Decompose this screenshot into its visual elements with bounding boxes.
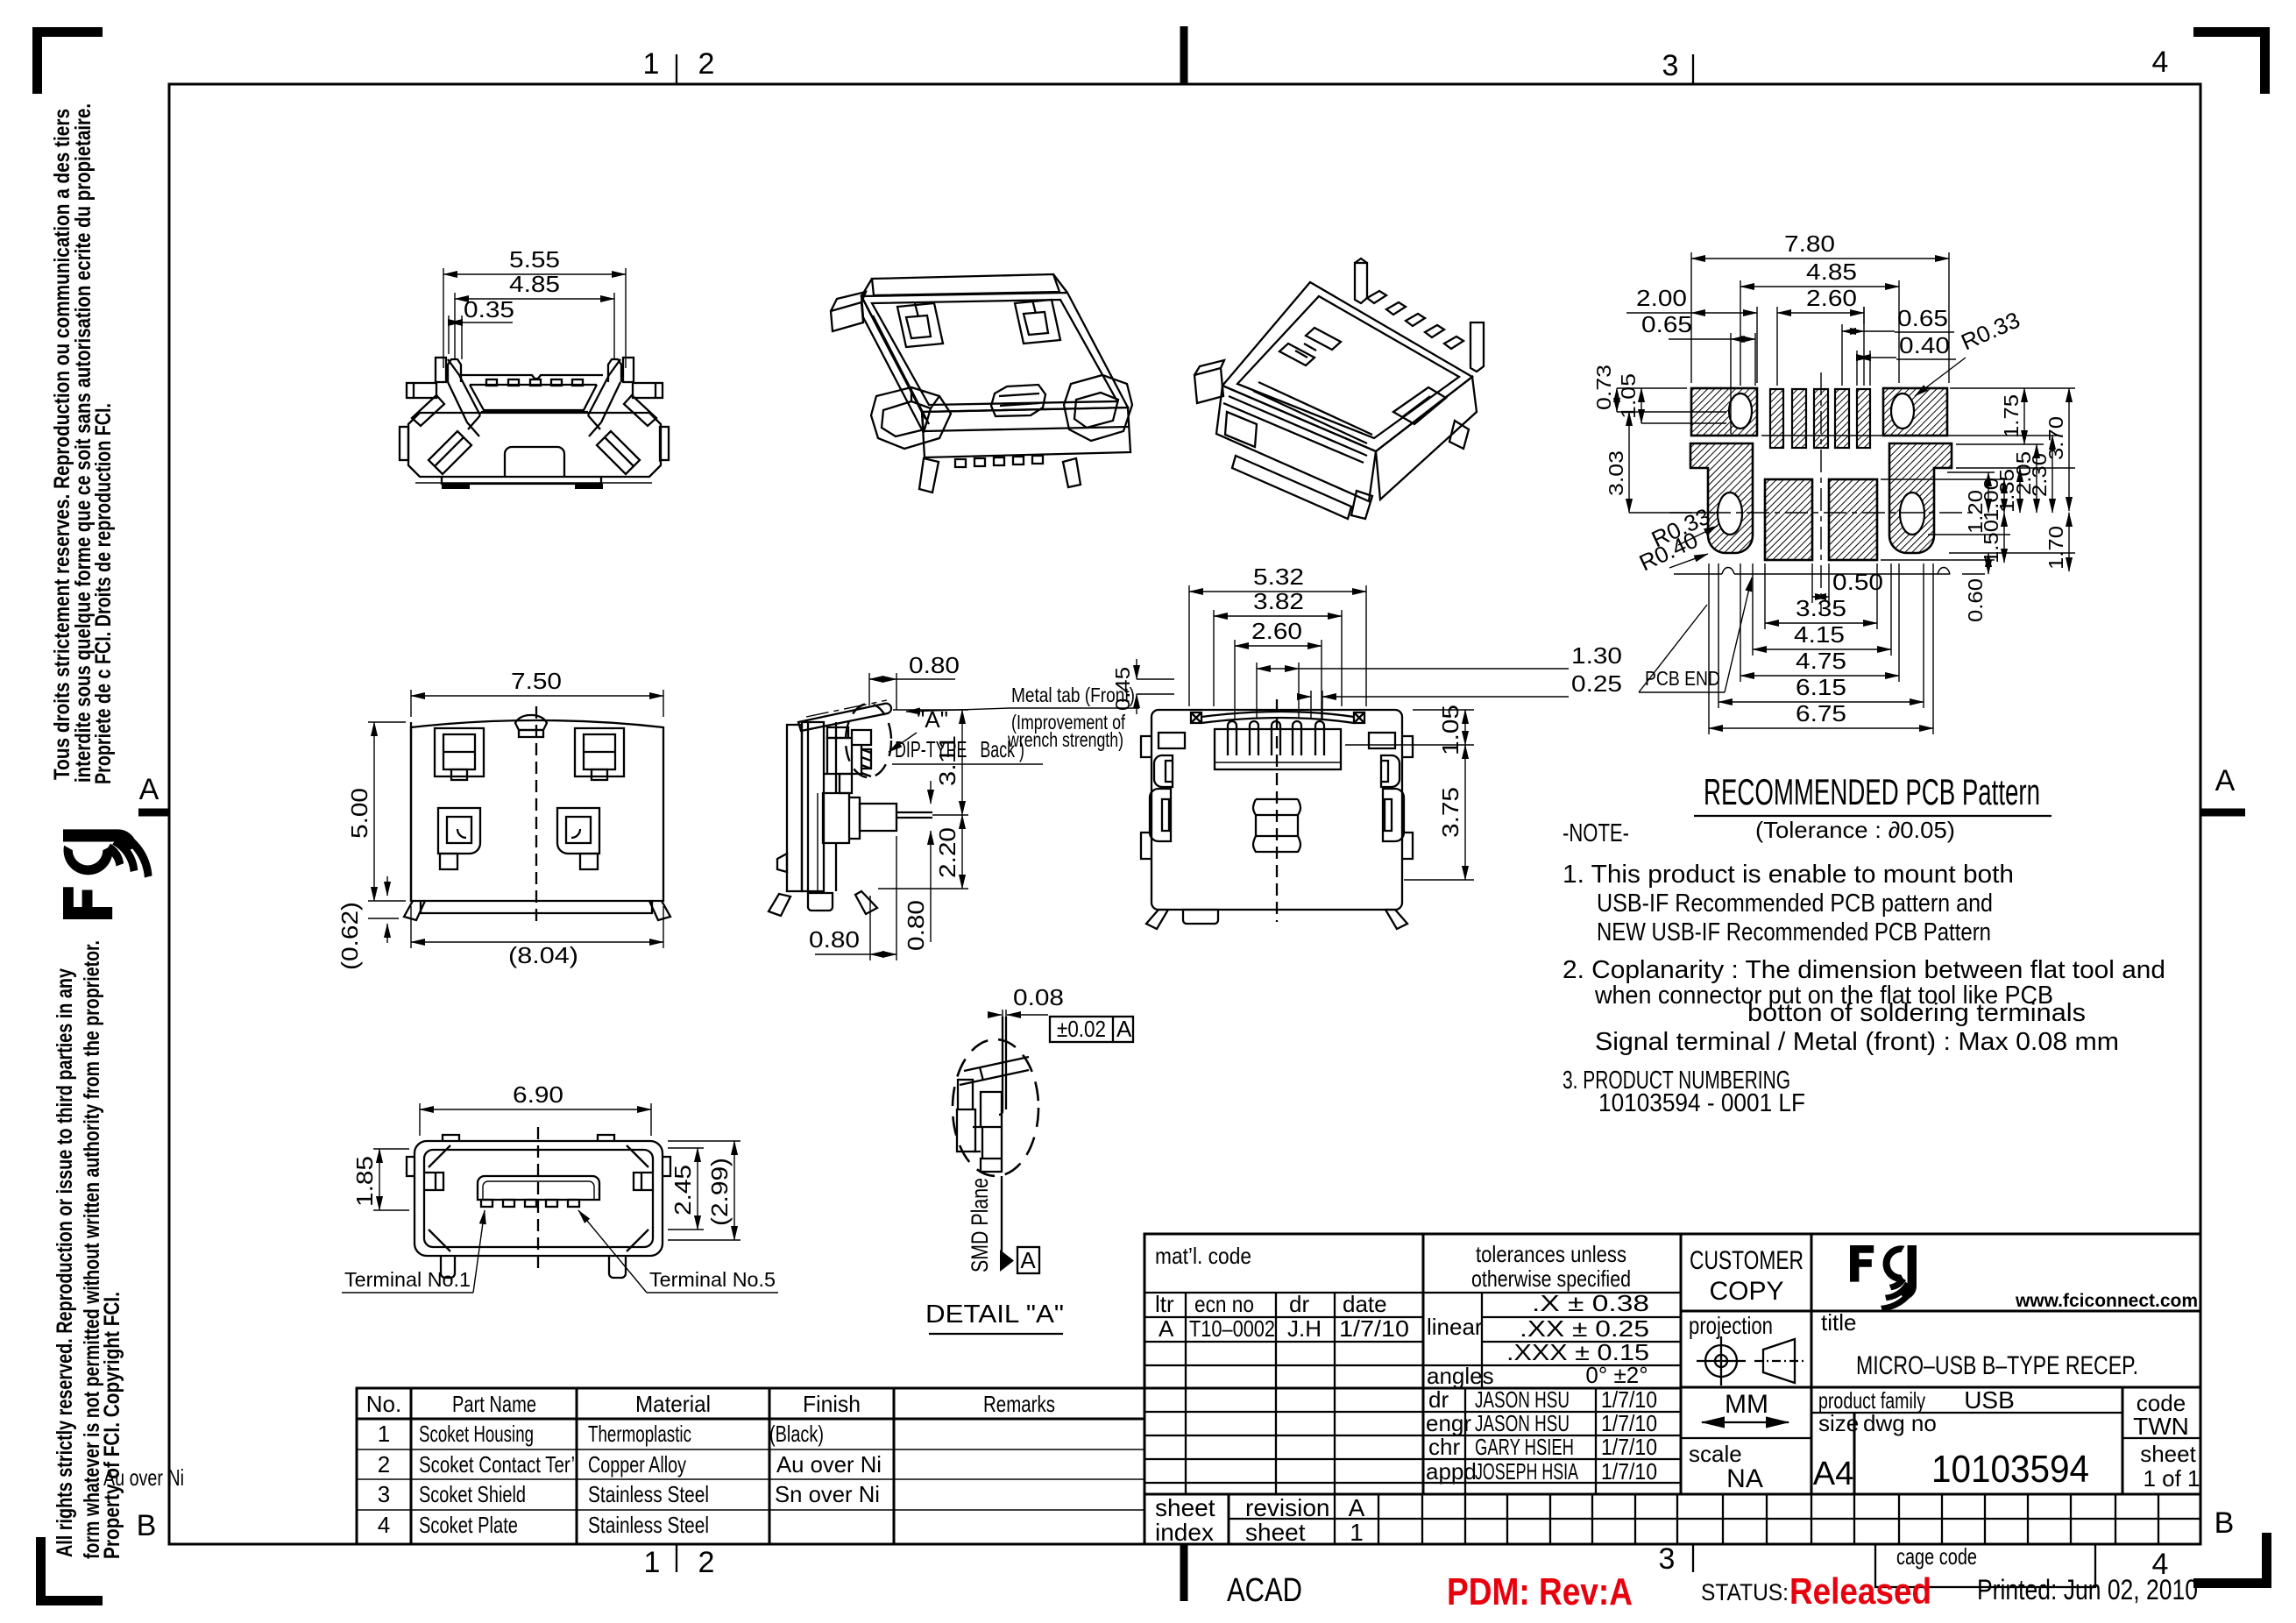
svg-text:1/7/10: 1/7/10 <box>1601 1410 1657 1436</box>
svg-text:ltr: ltr <box>1155 1291 1174 1317</box>
svg-text:4.85: 4.85 <box>509 271 560 297</box>
svg-text:2.00: 2.00 <box>1636 285 1687 311</box>
svg-text:USB: USB <box>1964 1386 2015 1414</box>
svg-text:sheet: sheet <box>2140 1441 2196 1467</box>
svg-text:0.60: 0.60 <box>1964 578 1987 622</box>
svg-text:.X ± 0.38: .X ± 0.38 <box>1532 1290 1649 1316</box>
svg-text:0.25: 0.25 <box>1571 670 1622 697</box>
svg-text:(0.62): (0.62) <box>337 902 363 970</box>
svg-text:2.45: 2.45 <box>670 1165 696 1215</box>
svg-text:A: A <box>1020 1247 1036 1273</box>
svg-text:5.55: 5.55 <box>509 246 560 273</box>
svg-text:0.50: 0.50 <box>1832 569 1883 595</box>
svg-text:PDM: Rev:A: PDM: Rev:A <box>1447 1570 1633 1613</box>
svg-text:MM: MM <box>1725 1390 1768 1419</box>
svg-text:JOSEPH HSIA: JOSEPH HSIA <box>1475 1458 1578 1485</box>
svg-text:0.80: 0.80 <box>903 900 929 951</box>
svg-text:ACAD: ACAD <box>1227 1572 1302 1609</box>
svg-text:0.40: 0.40 <box>1899 332 1950 358</box>
svg-text:chr: chr <box>1428 1434 1460 1460</box>
svg-text:GARY HSIEH: GARY HSIEH <box>1475 1434 1574 1460</box>
svg-text:(2.99): (2.99) <box>706 1158 733 1226</box>
svg-text:1: 1 <box>644 1546 661 1579</box>
svg-text:Printed: Jun 02, 2010: Printed: Jun 02, 2010 <box>1977 1574 2198 1605</box>
svg-text:0° ±2°: 0° ±2° <box>1585 1362 1648 1388</box>
svg-text:1: 1 <box>643 47 660 81</box>
svg-text:SMD Plane: SMD Plane <box>967 1178 993 1272</box>
svg-text:B: B <box>2215 1506 2235 1540</box>
svg-text:cage code: cage code <box>1896 1543 1977 1570</box>
svg-text:Terminal No.1: Terminal No.1 <box>344 1268 471 1291</box>
svg-text:CUSTOMER: CUSTOMER <box>1690 1246 1803 1275</box>
svg-text:6.75: 6.75 <box>1796 700 1846 726</box>
svg-text:1 of 1: 1 of 1 <box>2143 1465 2200 1492</box>
svg-text:dwg no: dwg no <box>1863 1410 1937 1436</box>
svg-text:10103594 - 0001 LF: 10103594 - 0001 LF <box>1598 1089 1805 1117</box>
svg-text:RECOMMENDED PCB Pattern: RECOMMENDED PCB Pattern <box>1704 771 2040 812</box>
svg-text:sheet: sheet <box>1245 1519 1306 1546</box>
svg-text:projection: projection <box>1689 1312 1773 1339</box>
svg-text:4.15: 4.15 <box>1794 621 1845 648</box>
svg-text:botton of soldering terminals: botton of soldering terminals <box>1747 999 2086 1027</box>
svg-text:6.90: 6.90 <box>513 1081 563 1108</box>
svg-text:0.65: 0.65 <box>1897 305 1948 331</box>
svg-text:linear: linear <box>1427 1314 1483 1340</box>
svg-text:7.50: 7.50 <box>511 668 562 694</box>
svg-text:0.08: 0.08 <box>1013 984 1064 1010</box>
svg-text:3.03: 3.03 <box>1605 450 1627 496</box>
svg-text:7.80: 7.80 <box>1784 230 1835 257</box>
svg-text:1/7/10: 1/7/10 <box>1601 1458 1657 1485</box>
svg-text:0.80: 0.80 <box>809 926 860 953</box>
svg-text:0.35: 0.35 <box>464 296 514 322</box>
svg-text:JASON HSU: JASON HSU <box>1475 1410 1570 1436</box>
svg-text:1: 1 <box>378 1421 390 1447</box>
svg-text:otherwise specified: otherwise specified <box>1471 1265 1631 1292</box>
svg-text:1/7/10: 1/7/10 <box>1601 1386 1657 1413</box>
svg-text:title: title <box>1821 1309 1856 1336</box>
svg-text:A: A <box>139 773 159 806</box>
svg-text:A: A <box>1349 1494 1365 1521</box>
svg-text:Released: Released <box>1789 1570 1931 1612</box>
svg-text:engr: engr <box>1426 1410 1471 1436</box>
svg-text:Scoket Housing: Scoket Housing <box>419 1421 534 1447</box>
svg-text:Au over Ni: Au over Ni <box>776 1451 882 1478</box>
svg-text:J.H: J.H <box>1287 1315 1322 1342</box>
svg-text:(Black): (Black) <box>769 1421 824 1447</box>
svg-text:2: 2 <box>698 1546 715 1579</box>
svg-text:Thermoplastic: Thermoplastic <box>588 1421 691 1447</box>
svg-text:1/7/10: 1/7/10 <box>1339 1315 1409 1342</box>
svg-text:dr: dr <box>1289 1291 1309 1317</box>
svg-text:index: index <box>1155 1519 1214 1546</box>
svg-text:3.35: 3.35 <box>1796 595 1846 621</box>
svg-text:DETAIL "A": DETAIL "A" <box>925 1301 1064 1329</box>
svg-text:TWN: TWN <box>2133 1413 2189 1440</box>
svg-text:3: 3 <box>1662 49 1679 82</box>
svg-text:1.05: 1.05 <box>1437 705 1463 755</box>
svg-text:size: size <box>1818 1410 1859 1436</box>
svg-text:NEW USB-IF Recommended PCB Pat: NEW USB-IF Recommended PCB Pattern <box>1597 918 1991 946</box>
svg-text:ecn no: ecn no <box>1194 1291 1254 1317</box>
svg-text:wrench strength): wrench strength) <box>1007 728 1123 751</box>
svg-text:5.32: 5.32 <box>1253 563 1304 590</box>
svg-text:3.82: 3.82 <box>1253 588 1304 614</box>
svg-text:Scoket Contact Ter’: Scoket Contact Ter’ <box>419 1451 575 1478</box>
svg-text:0.45: 0.45 <box>1111 667 1134 711</box>
svg-text:-NOTE-: -NOTE- <box>1563 819 1629 847</box>
svg-text:sheet: sheet <box>1155 1494 1215 1521</box>
svg-text:0.65: 0.65 <box>1641 311 1692 337</box>
svg-text:1.75: 1.75 <box>2000 394 2023 438</box>
svg-text:2.60: 2.60 <box>1806 285 1857 311</box>
svg-text:1.50: 1.50 <box>1980 520 2002 563</box>
svg-text:dr: dr <box>1428 1386 1449 1413</box>
svg-text:5.00: 5.00 <box>346 788 372 839</box>
svg-text:A: A <box>1159 1315 1174 1342</box>
svg-text:Propriete de c FCI. Droits de: Propriete de c FCI. Droits de reproducti… <box>91 403 116 784</box>
svg-text:3: 3 <box>378 1481 390 1507</box>
svg-text:mat’l. code: mat’l. code <box>1155 1243 1251 1269</box>
svg-text:6.15: 6.15 <box>1796 674 1846 700</box>
svg-text:B: B <box>137 1509 157 1542</box>
svg-text:4: 4 <box>2152 46 2169 79</box>
svg-text:MICRO–USB B–TYPE RECEP.: MICRO–USB B–TYPE RECEP. <box>1856 1351 2138 1380</box>
svg-text:A: A <box>1116 1016 1132 1042</box>
svg-text:0.73: 0.73 <box>1592 365 1615 410</box>
svg-text:COPY: COPY <box>1709 1277 1783 1306</box>
svg-text:2: 2 <box>378 1451 390 1478</box>
svg-text:1: 1 <box>1350 1519 1364 1546</box>
svg-text:Copper Alloy: Copper Alloy <box>588 1451 686 1478</box>
svg-text:±0.02: ±0.02 <box>1057 1016 1106 1042</box>
svg-text:(8.04): (8.04) <box>508 942 578 968</box>
svg-text:A4: A4 <box>1813 1456 1853 1492</box>
svg-text:revision: revision <box>1245 1494 1329 1521</box>
svg-text:Signal terminal / Metal (front: Signal terminal / Metal (front) : Max 0.… <box>1595 1028 2119 1056</box>
svg-text:Stainless Steel: Stainless Steel <box>588 1512 709 1538</box>
svg-text:3: 3 <box>1659 1542 1676 1576</box>
svg-text:.XX ± 0.25: .XX ± 0.25 <box>1520 1315 1649 1342</box>
svg-text:Finish: Finish <box>803 1391 861 1417</box>
svg-text:USB-IF Recommended PCB pattern: USB-IF Recommended PCB pattern and <box>1597 889 1993 918</box>
svg-text:Material: Material <box>635 1391 711 1417</box>
svg-text:appd: appd <box>1426 1458 1477 1485</box>
svg-text:Scoket Plate: Scoket Plate <box>419 1512 518 1538</box>
svg-text:4.75: 4.75 <box>1796 648 1846 674</box>
svg-text:All rights strictly reserved.: All rights strictly reserved. Reproducti… <box>53 968 77 1557</box>
svg-text:Terminal No.5: Terminal No.5 <box>649 1268 776 1291</box>
svg-text:Remarks: Remarks <box>983 1391 1055 1417</box>
svg-text:Part Name: Part Name <box>452 1391 536 1417</box>
svg-text:Scoket Shield: Scoket Shield <box>419 1481 526 1507</box>
svg-text:10103594: 10103594 <box>1931 1448 2089 1491</box>
svg-text:1.85: 1.85 <box>351 1156 378 1207</box>
svg-text:1.30: 1.30 <box>1571 642 1622 669</box>
svg-text:DIP-TYPE Back ): DIP-TYPE Back ) <box>895 736 1024 762</box>
svg-text:2.60: 2.60 <box>1251 618 1302 644</box>
svg-text:tolerances unless: tolerances unless <box>1476 1241 1626 1267</box>
svg-text:2: 2 <box>698 47 715 81</box>
svg-text:STATUS:: STATUS: <box>1701 1579 1789 1605</box>
svg-text:Sn over Ni: Sn over Ni <box>775 1481 880 1507</box>
svg-text:2.20: 2.20 <box>934 827 960 878</box>
svg-text:1.70: 1.70 <box>2044 526 2067 570</box>
svg-text:(Tolerance : ∂0.05): (Tolerance : ∂0.05) <box>1755 817 1955 843</box>
svg-text:0.80: 0.80 <box>909 652 960 678</box>
svg-text:4: 4 <box>378 1512 390 1538</box>
svg-text:2.30: 2.30 <box>2028 453 2051 497</box>
svg-text:scale: scale <box>1689 1441 1742 1467</box>
svg-text:T10–0002: T10–0002 <box>1189 1315 1275 1342</box>
svg-text:date: date <box>1343 1291 1387 1317</box>
svg-text:JASON HSU: JASON HSU <box>1475 1386 1570 1413</box>
svg-text:Stainless Steel: Stainless Steel <box>588 1481 709 1507</box>
svg-text:angles: angles <box>1427 1363 1494 1389</box>
svg-text:Property of FCI. Copyright FC: Property of FCI. Copyright FCI. <box>100 1292 124 1559</box>
svg-text:NA: NA <box>1726 1464 1763 1493</box>
svg-text:www.fciconnect.com: www.fciconnect.com <box>2015 1291 2198 1311</box>
svg-text:A: A <box>2215 764 2236 797</box>
svg-text:2. Coplanarity : The dimension: 2. Coplanarity : The dimension between f… <box>1563 956 2165 984</box>
svg-text:No.: No. <box>366 1391 401 1417</box>
svg-text:1. This product is enable to m: 1. This product is enable to mount both <box>1563 861 2014 889</box>
svg-text:3.75: 3.75 <box>1437 787 1463 838</box>
svg-text:1/7/10: 1/7/10 <box>1601 1434 1657 1460</box>
svg-text:4.85: 4.85 <box>1806 259 1857 285</box>
